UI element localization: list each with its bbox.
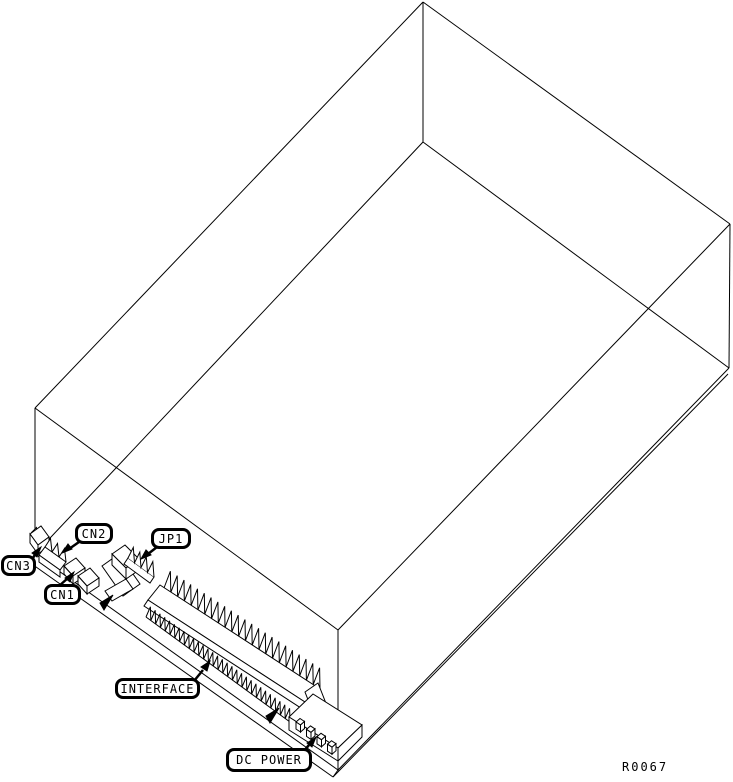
callout-interface: INTERFACE — [116, 679, 199, 698]
callout-jp1: JP1 — [152, 529, 190, 548]
figure-reference-number: R0067 — [622, 760, 668, 774]
callout-pointer-interface — [194, 661, 210, 681]
callout-pointer-cn2 — [62, 542, 79, 553]
pin1-arrow-right — [266, 708, 279, 723]
callout-cn1: CN1 — [45, 585, 80, 604]
figure-canvas: CN3 CN2 CN1 JP1 INTERFACE DC POWER R0067 — [0, 0, 733, 782]
callout-cn3: CN3 — [2, 556, 35, 575]
callout-dc-power: DC POWER — [227, 749, 311, 771]
callout-pointer-jp1 — [141, 547, 157, 559]
callout-cn2: CN2 — [76, 524, 112, 543]
isometric-wireframe-drawing — [0, 0, 733, 782]
interface-connector — [144, 571, 327, 722]
enclosure-wireframe — [35, 2, 730, 771]
